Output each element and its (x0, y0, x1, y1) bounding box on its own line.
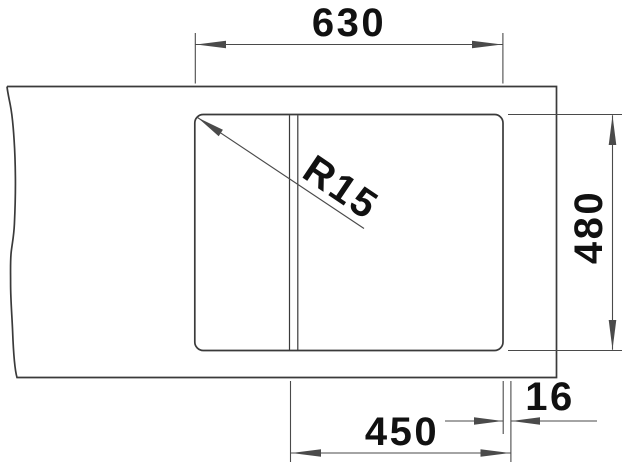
sink-cutout-outline (195, 115, 503, 351)
dim-450-arrow-left (291, 449, 321, 457)
dim-480-arrow-top (609, 115, 617, 145)
technical-drawing-canvas: 630 480 450 16 R15 (0, 0, 625, 469)
dim-label-edge-offset: 16 (525, 377, 575, 417)
dim-630-arrow-left (196, 41, 226, 49)
dim-label-top-width: 630 (312, 3, 386, 43)
dim-450-arrow-right (481, 449, 511, 457)
dim-480-arrow-bottom (609, 320, 617, 350)
dim-630-arrow-right (472, 41, 502, 49)
dim-label-height: 480 (569, 190, 609, 264)
dim-label-bowl-width: 450 (365, 412, 439, 452)
dim-16-arrow-left (474, 417, 503, 424)
